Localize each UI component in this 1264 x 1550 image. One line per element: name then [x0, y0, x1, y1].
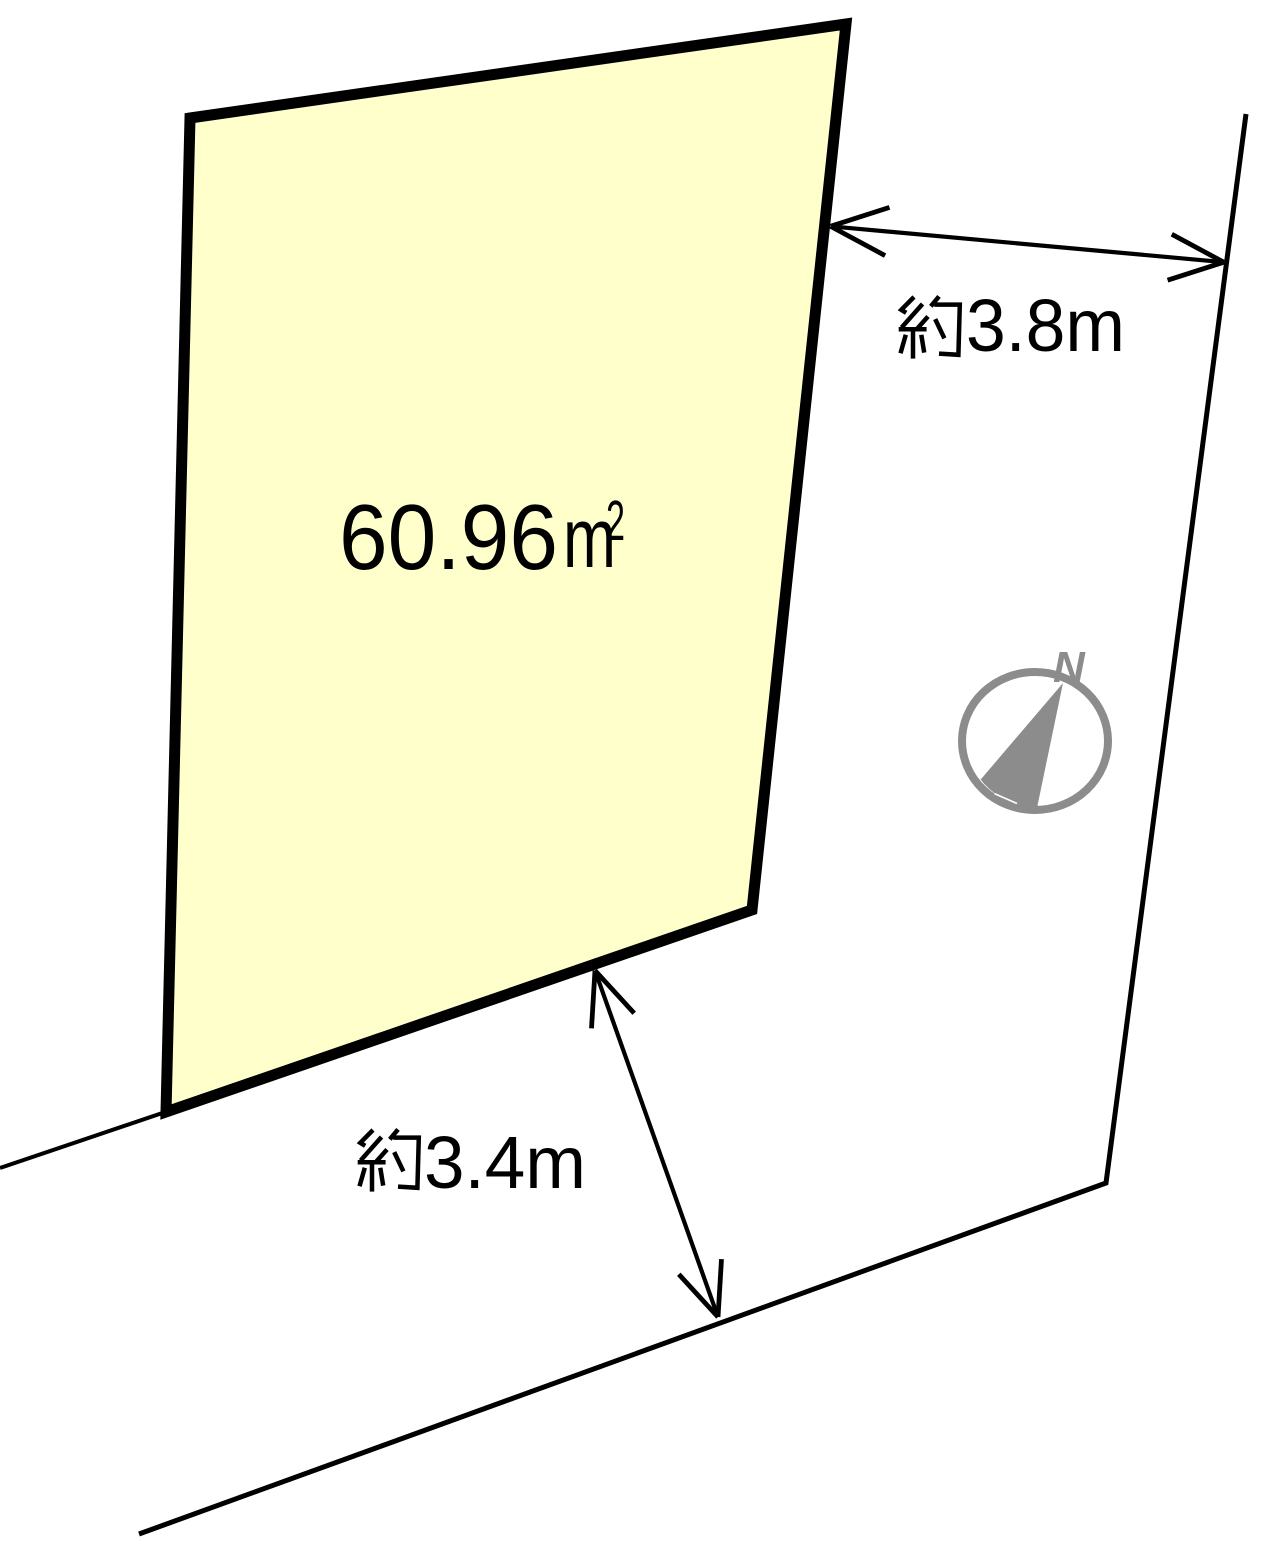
svg-text:2: 2	[606, 489, 625, 553]
svg-text:3.4m: 3.4m	[424, 1121, 586, 1204]
svg-text:60.96: 60.96	[339, 485, 558, 589]
svg-text:3.8m: 3.8m	[966, 284, 1125, 367]
svg-text:N: N	[1053, 643, 1086, 692]
